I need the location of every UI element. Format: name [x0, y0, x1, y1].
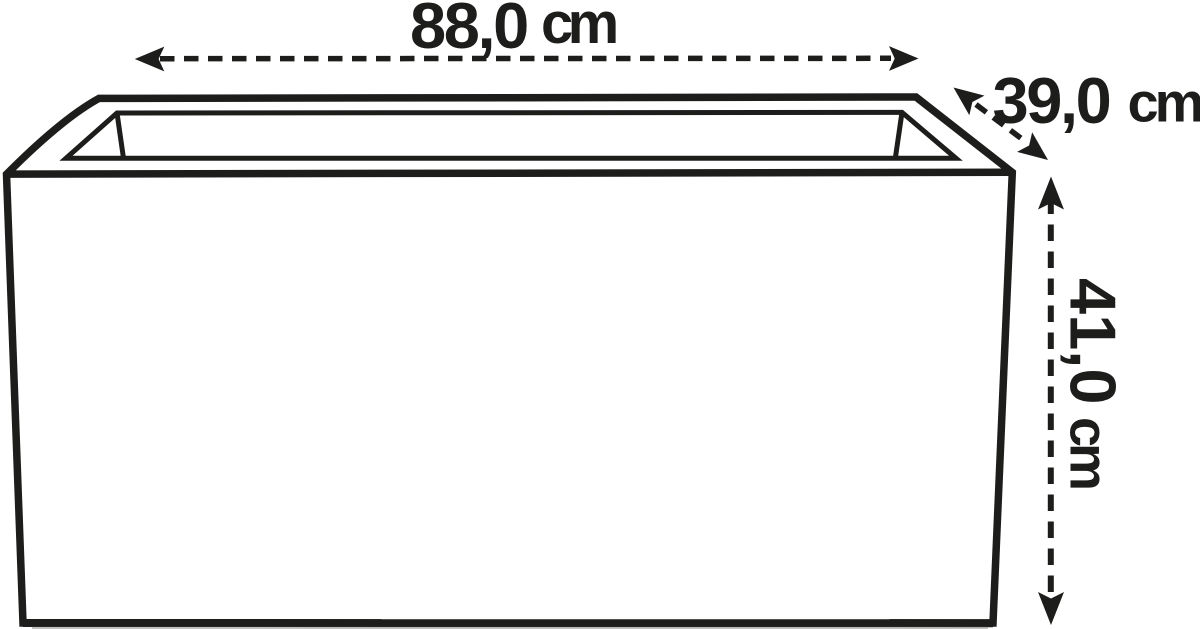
svg-text:39,0: 39,0: [993, 64, 1110, 137]
svg-text:88,0: 88,0: [410, 0, 527, 62]
svg-text:41,0: 41,0: [1057, 278, 1130, 405]
svg-text:cm: cm: [1059, 417, 1119, 488]
svg-text:cm: cm: [1128, 71, 1200, 134]
svg-text:cm: cm: [541, 0, 616, 56]
